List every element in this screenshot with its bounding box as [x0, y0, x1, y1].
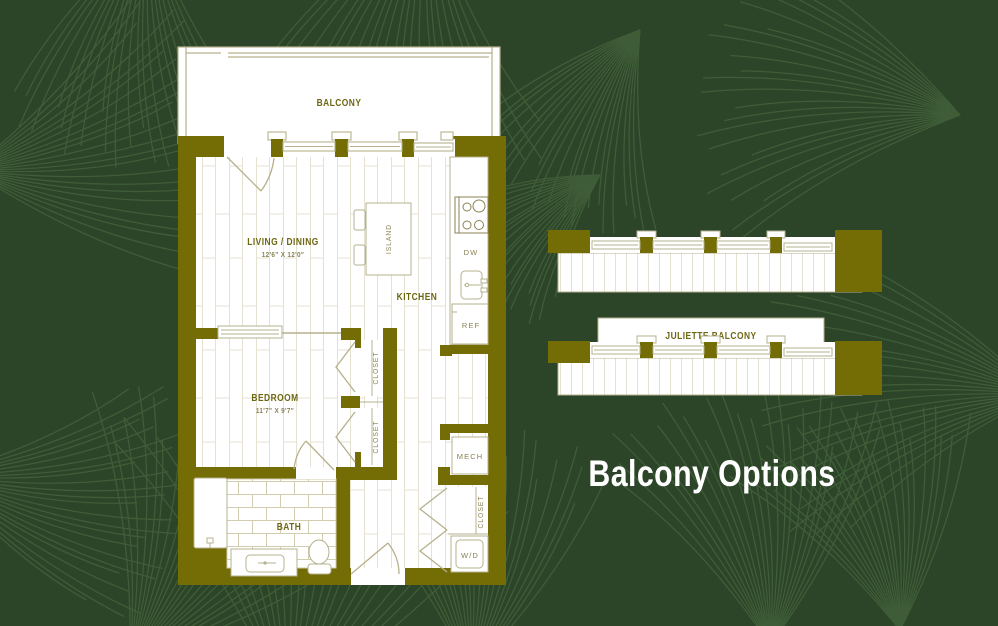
- stove: [455, 197, 488, 233]
- window-mullion: [770, 342, 782, 358]
- window-cap: [637, 336, 656, 343]
- window-cap: [399, 132, 417, 140]
- bath-vanity: [231, 549, 297, 576]
- closet-label: CLOSET: [477, 496, 485, 529]
- island-label: ISLAND: [385, 224, 393, 254]
- option2-left-wall: [548, 341, 590, 363]
- refrigerator: REF: [452, 304, 488, 344]
- bath-label: BATH: [277, 521, 302, 533]
- living-room-dims: 12'6" X 12'0": [262, 252, 305, 260]
- bedroom-label: BEDROOM: [251, 392, 298, 404]
- wall-top-right-block: [453, 136, 506, 157]
- window-cap: [268, 132, 286, 140]
- window-cap: [332, 132, 351, 140]
- washer-dryer-label: W/D: [461, 551, 479, 560]
- window-mullion: [271, 139, 283, 157]
- option1-left-wall: [548, 230, 590, 253]
- window-mullion: [640, 342, 653, 358]
- bedroom-sliding-door: [218, 326, 282, 338]
- balcony-area: BALCONY: [178, 47, 500, 143]
- island-stool: [354, 245, 365, 265]
- closet-divider: [341, 396, 360, 408]
- bath-hall-wall: [336, 467, 350, 568]
- bathtub: [194, 478, 227, 548]
- window-cap: [637, 231, 656, 238]
- window-mullion: [704, 237, 717, 253]
- washer-dryer: W/D: [451, 536, 488, 572]
- window-cap: [767, 231, 785, 238]
- floor-plan: BALCONY: [178, 47, 506, 585]
- toilet: [308, 540, 331, 574]
- balcony-label: BALCONY: [317, 97, 362, 109]
- closet-stub: [355, 452, 361, 467]
- floorplan-page: BALCONY: [0, 0, 998, 626]
- floorplan-canvas: BALCONY: [0, 0, 998, 626]
- bath-top-wall: [196, 467, 296, 479]
- wall-right: [488, 138, 506, 585]
- refrigerator-label: REF: [462, 321, 480, 330]
- kitchen-label: KITCHEN: [397, 291, 438, 303]
- closet-label: CLOSET: [372, 421, 380, 454]
- living-room-label: LIVING / DINING: [247, 236, 319, 248]
- option2-right-wall: [835, 341, 882, 395]
- option2-floor: [558, 358, 862, 395]
- bedroom-dims: 11'7" X 9'7": [256, 408, 294, 416]
- window-cap: [441, 132, 453, 140]
- mech-label: MECH: [457, 452, 483, 461]
- window-mullion: [402, 139, 414, 157]
- window-cap: [701, 231, 720, 238]
- wall-left: [178, 138, 196, 585]
- closet-stub: [355, 334, 361, 348]
- dishwasher-label: DW: [464, 248, 479, 257]
- option1-right-wall: [835, 230, 882, 292]
- window-mullion: [640, 237, 653, 253]
- closet-label: CLOSET: [372, 352, 380, 385]
- page-title: Balcony Options: [588, 453, 835, 495]
- window-mullion: [770, 237, 782, 253]
- window-cap: [701, 336, 720, 343]
- option1-floor: [558, 253, 862, 292]
- closet-back-wall: [383, 328, 397, 480]
- island-stool: [354, 210, 365, 230]
- window-cap: [767, 336, 785, 343]
- window-mullion: [335, 139, 348, 157]
- balcony-option-standard: [548, 230, 882, 292]
- window-mullion: [704, 342, 717, 358]
